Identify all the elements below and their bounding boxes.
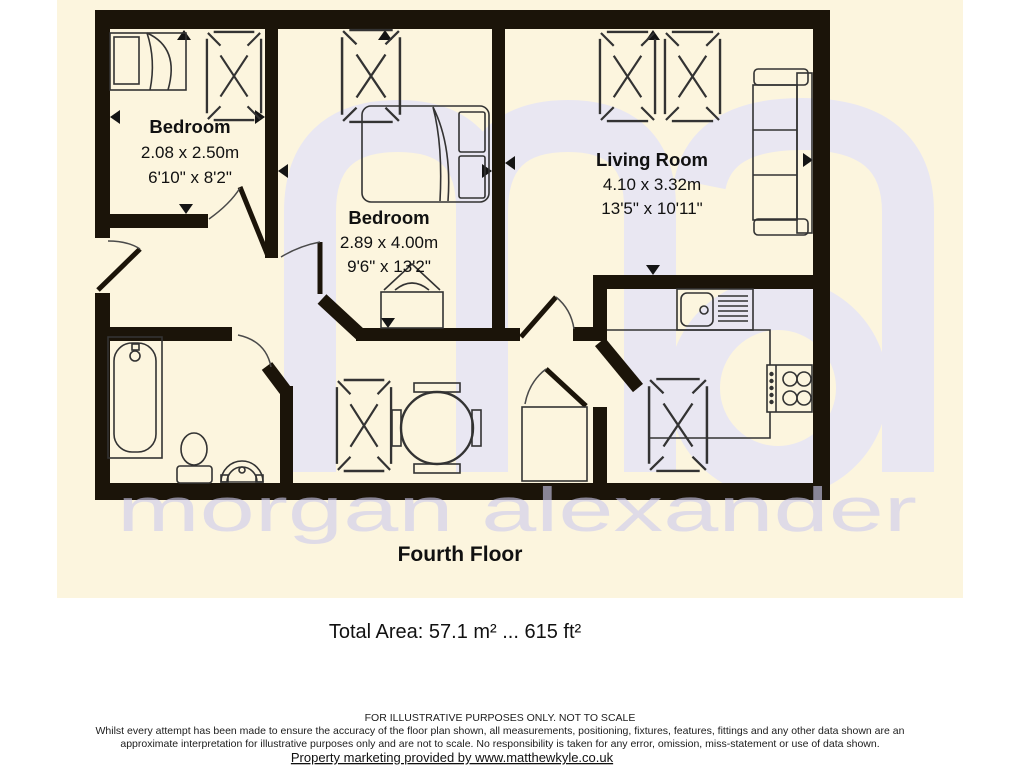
watermark-brand-name: morgan alexander bbox=[117, 476, 917, 545]
footer-disclaimer: FOR ILLUSTRATIVE PURPOSES ONLY. NOT TO S… bbox=[96, 712, 905, 765]
room-dim-imperial: 13'5" x 10'11" bbox=[601, 199, 702, 218]
room-dim-metric: 4.10 x 3.32m bbox=[603, 175, 701, 194]
floorplan-page: Bedroom 2.08 x 2.50m 6'10" x 8'2" Bedroo… bbox=[0, 0, 1024, 768]
total-area-label: Total Area: 57.1 m² ... 615 ft² bbox=[329, 621, 582, 643]
room-dim-imperial: 6'10" x 8'2" bbox=[148, 168, 232, 187]
disclaimer-line-3: approximate interpretation for illustrat… bbox=[120, 738, 879, 750]
room-dim-metric: 2.89 x 4.00m bbox=[340, 233, 438, 252]
disclaimer-line-1: FOR ILLUSTRATIVE PURPOSES ONLY. NOT TO S… bbox=[365, 712, 636, 724]
room-name: Bedroom bbox=[348, 207, 429, 228]
floor-title: Fourth Floor bbox=[398, 543, 523, 566]
floorplan-canvas: Bedroom 2.08 x 2.50m 6'10" x 8'2" Bedroo… bbox=[0, 0, 1024, 768]
room-name: Living Room bbox=[596, 149, 708, 170]
marketing-link[interactable]: Property marketing provided by www.matth… bbox=[291, 750, 614, 765]
room-name: Bedroom bbox=[149, 116, 230, 137]
disclaimer-line-2: Whilst every attempt has been made to en… bbox=[96, 725, 905, 737]
room-dim-imperial: 9'6" x 13'2" bbox=[347, 257, 431, 276]
room-dim-metric: 2.08 x 2.50m bbox=[141, 143, 239, 162]
